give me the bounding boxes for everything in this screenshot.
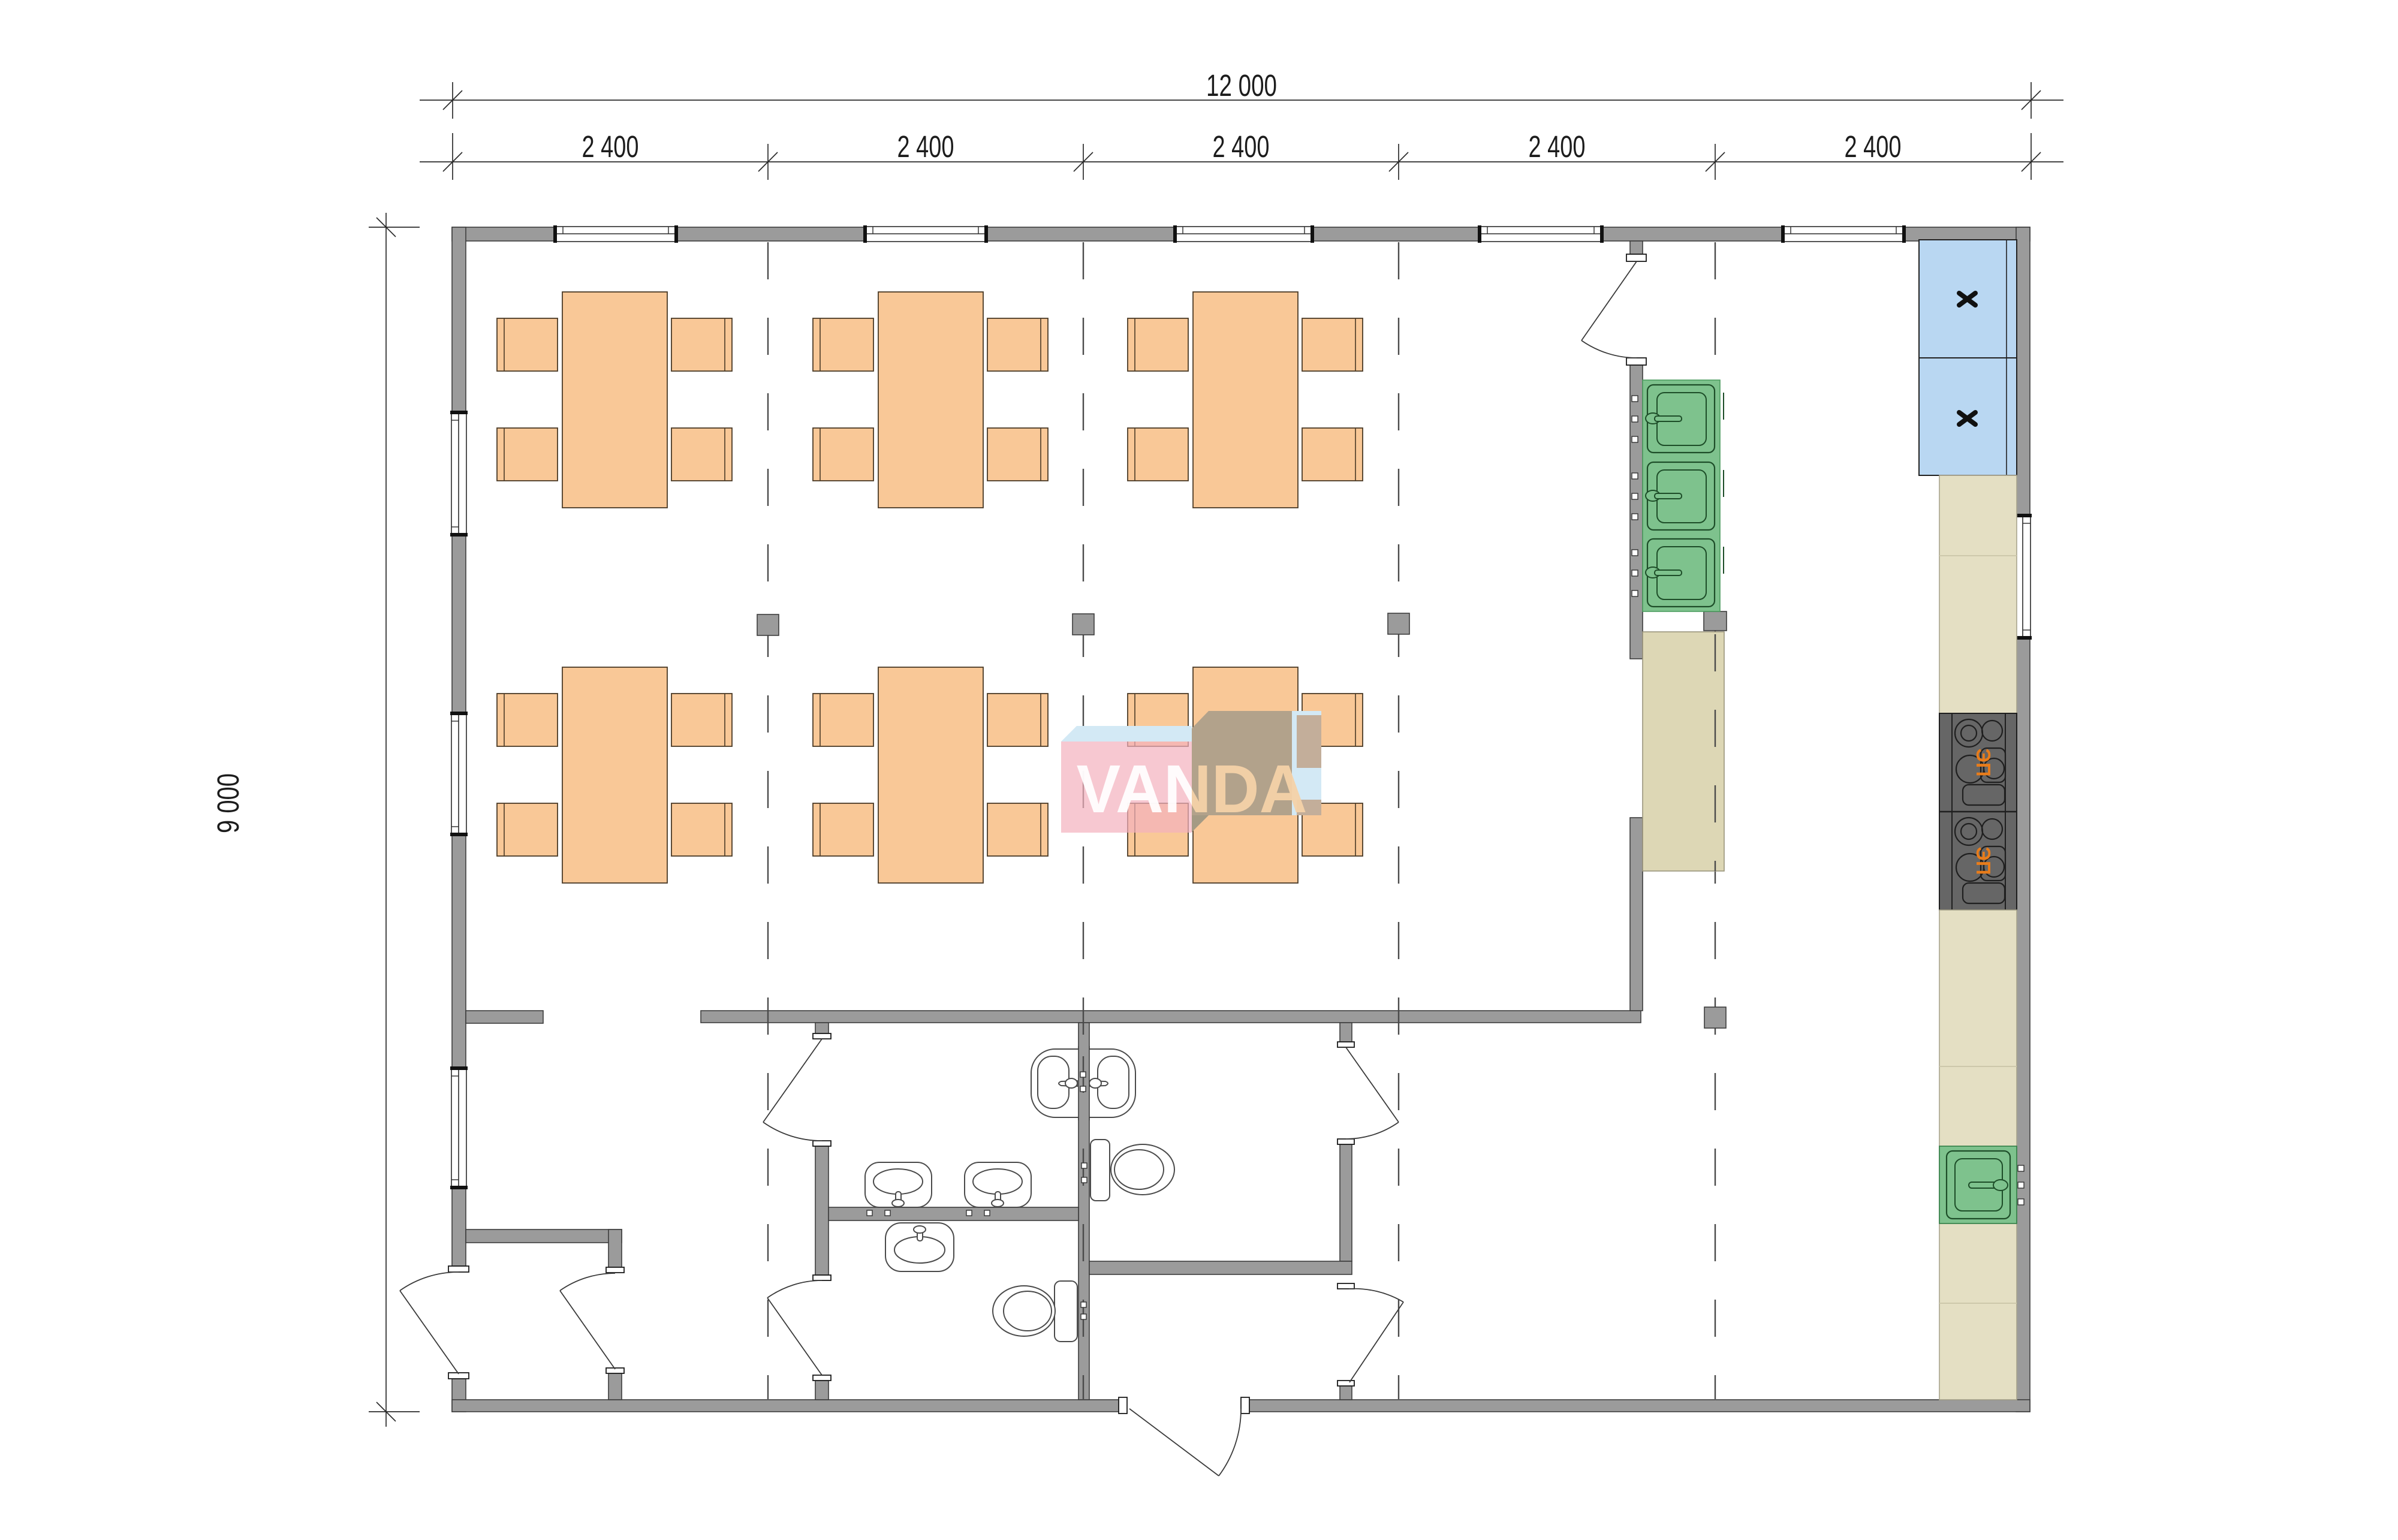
svg-text:2 400: 2 400	[897, 129, 954, 164]
svg-text:2 400: 2 400	[582, 129, 639, 164]
svg-text:2 400: 2 400	[1213, 129, 1270, 164]
svg-text:2 400: 2 400	[1845, 129, 1902, 164]
svg-text:12 000: 12 000	[1206, 68, 1277, 103]
svg-text:2 400: 2 400	[1529, 129, 1586, 164]
svg-text:ЭП: ЭП	[1972, 748, 1995, 776]
svg-text:ЭП: ЭП	[1972, 846, 1995, 875]
svg-text:9 000: 9 000	[211, 773, 245, 833]
